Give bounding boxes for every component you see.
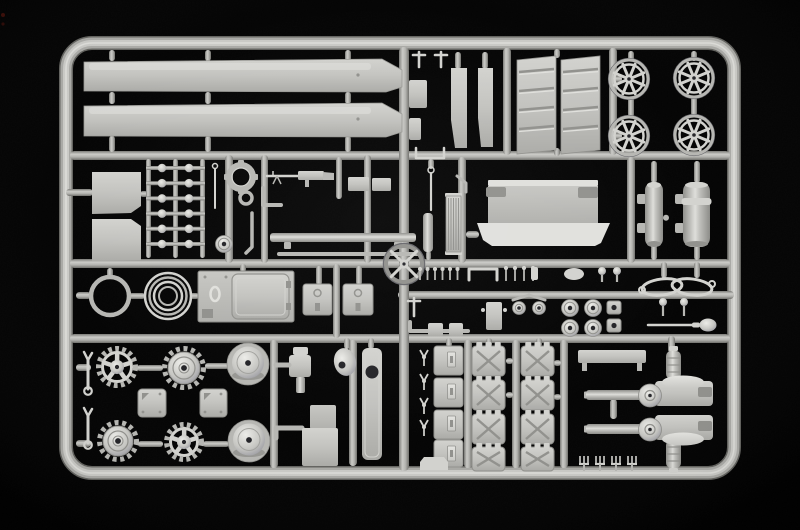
sprue-photo xyxy=(0,0,800,530)
vignette-overlay xyxy=(0,0,800,530)
photo-stage xyxy=(0,0,800,530)
